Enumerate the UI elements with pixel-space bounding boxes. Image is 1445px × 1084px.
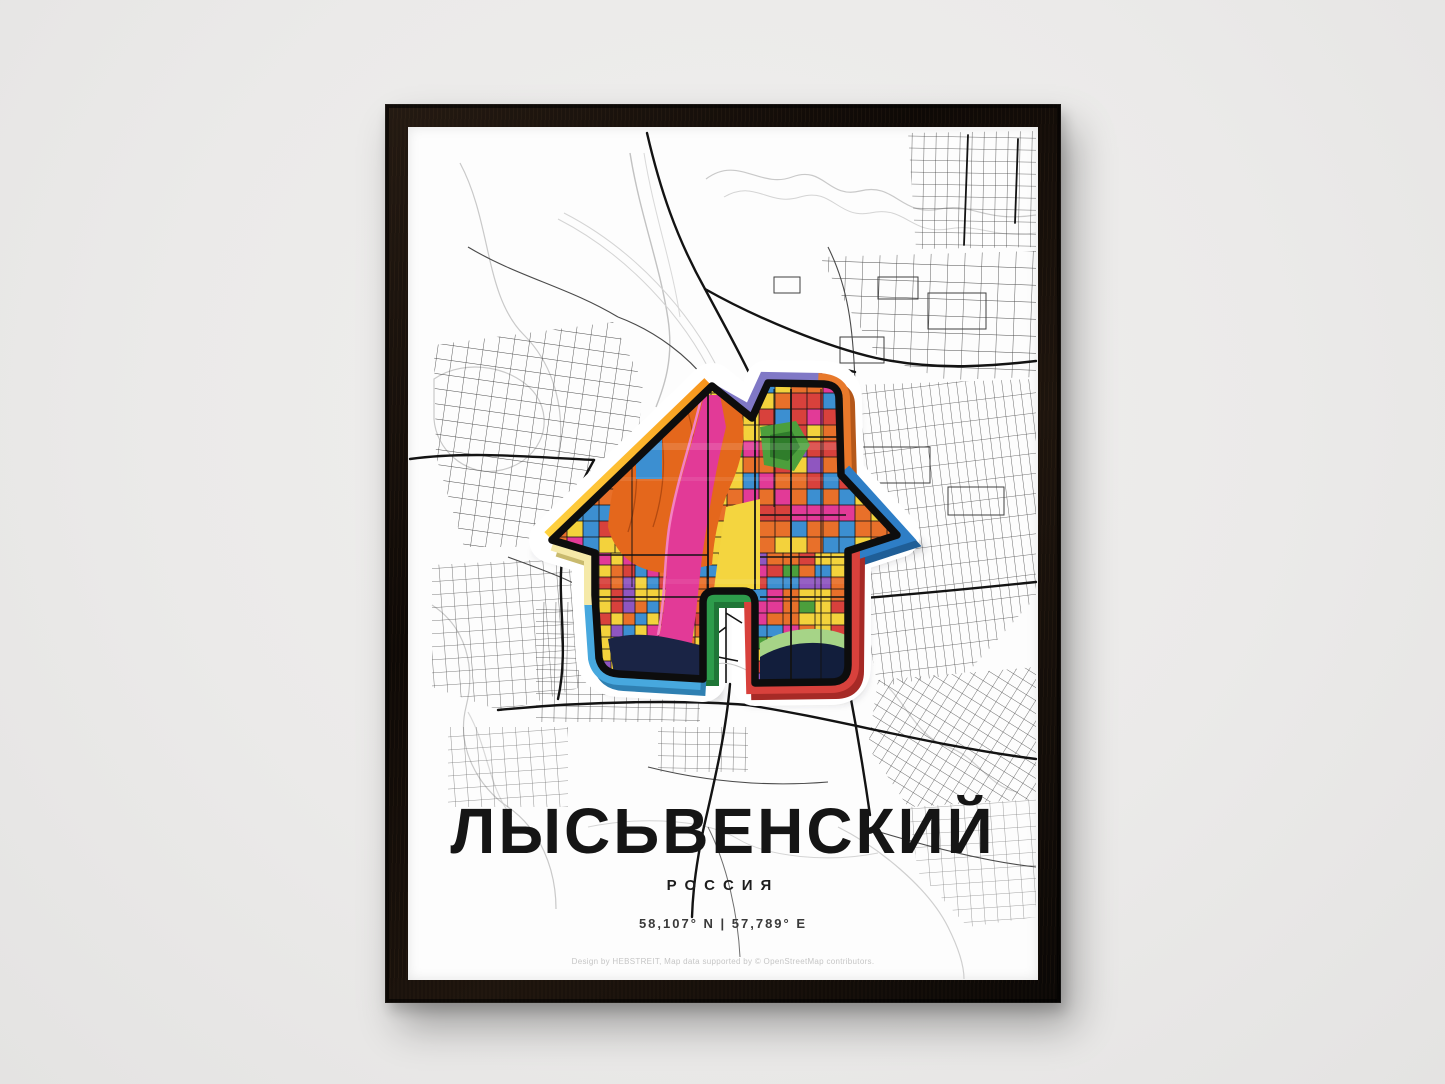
poster-frame: ЛЫСЬВЕНСКИЙ РОССИЯ 58,107° N | 57,789° E… [385, 104, 1061, 1003]
poster-title: ЛЫСЬВЕНСКИЙ [408, 799, 1038, 863]
poster-subtitle: РОССИЯ [408, 877, 1038, 894]
poster-coordinates: 58,107° N | 57,789° E [408, 916, 1038, 931]
poster-credit: Design by HEBSTREIT, Map data supported … [408, 957, 1038, 966]
wall: ЛЫСЬВЕНСКИЙ РОССИЯ 58,107° N | 57,789° E… [0, 0, 1445, 1084]
poster-paper: ЛЫСЬВЕНСКИЙ РОССИЯ 58,107° N | 57,789° E… [408, 127, 1038, 980]
